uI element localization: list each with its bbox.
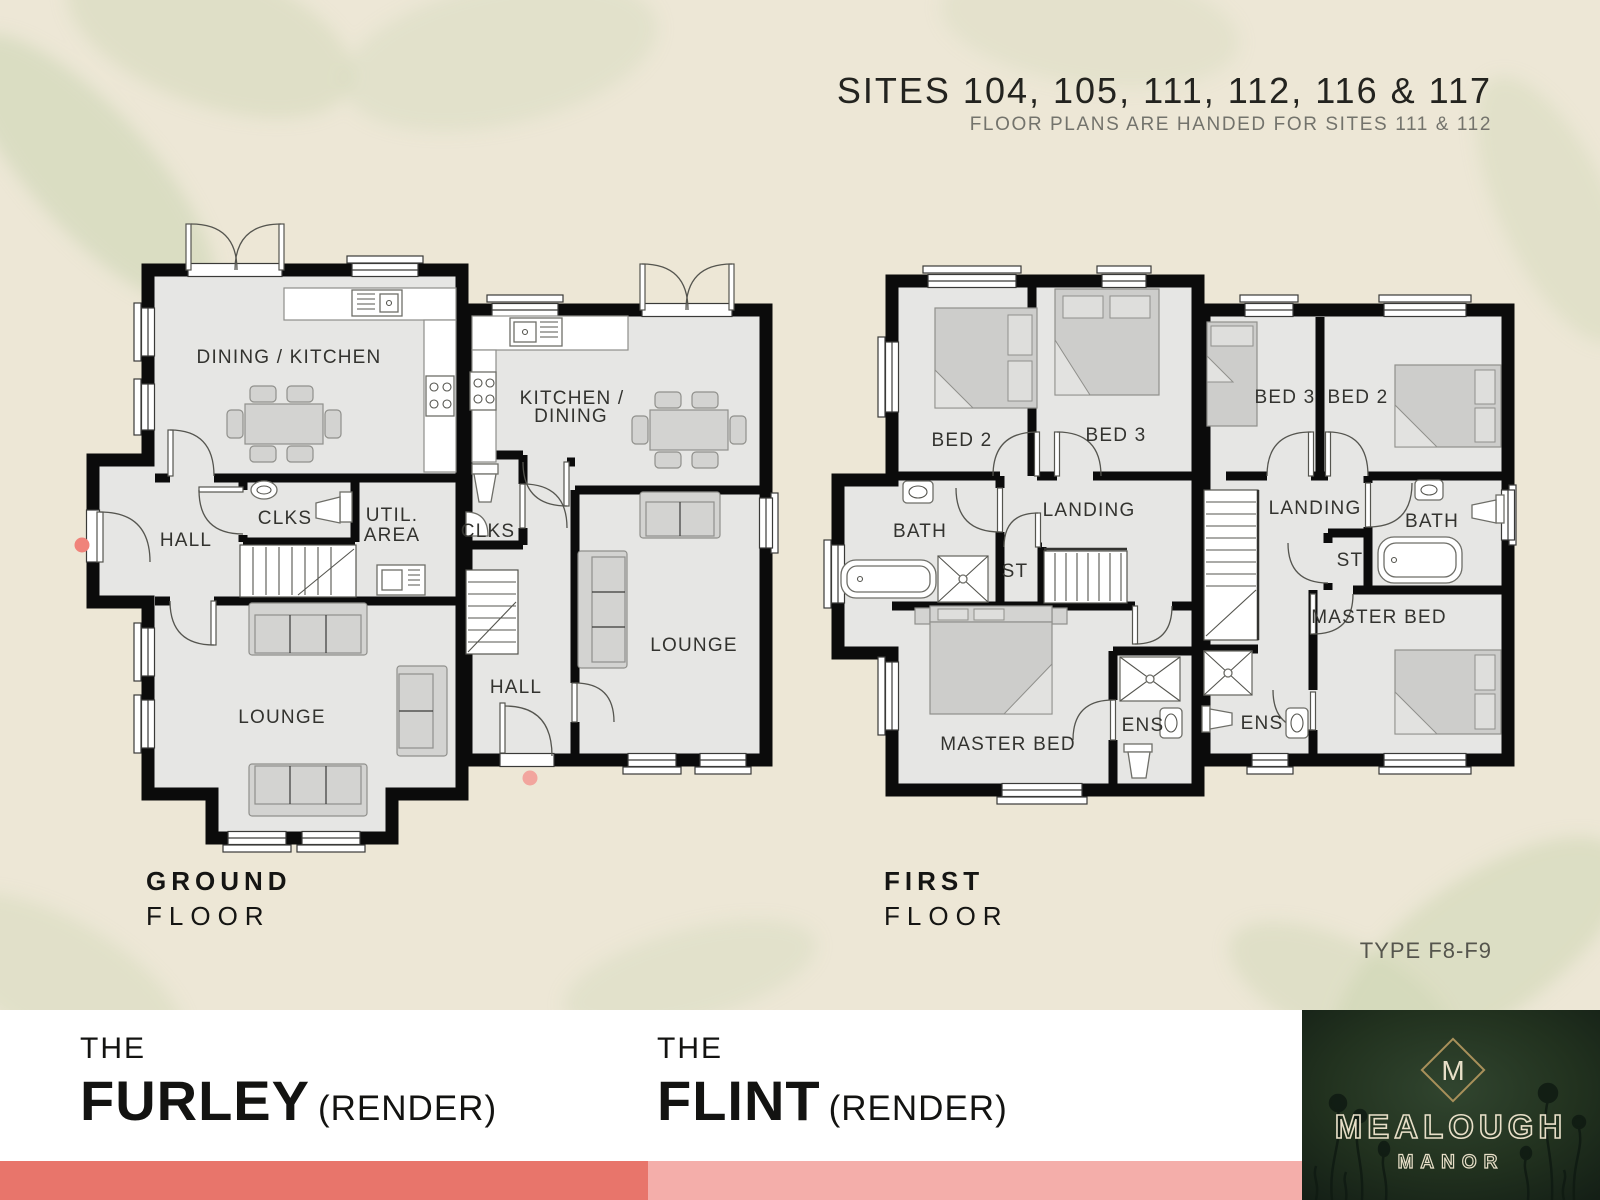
ground-floor-plan: DINING / KITCHEN HALL CLKS UTIL. AREA LO…	[75, 224, 779, 852]
logo-monogram: M	[1441, 1055, 1464, 1086]
first-floor-flint	[1202, 295, 1516, 774]
room-label-bed3-furley: BED 3	[1086, 425, 1147, 446]
sites-title: SITES 104, 105, 111, 112, 116 & 117	[837, 70, 1492, 112]
ground-floor-caption-line1: GROUND	[146, 866, 292, 897]
room-label-dining-kitchen: DINING / KITCHEN	[197, 347, 382, 368]
room-label-util-2: AREA	[364, 525, 421, 546]
room-label-st-furley: ST	[1002, 561, 1029, 582]
room-label-kitchen-dining-2: DINING	[534, 406, 608, 427]
room-label-ens-furley: ENS	[1122, 715, 1165, 736]
site-marker-flint	[523, 771, 538, 786]
room-label-bed2-flint: BED 2	[1328, 387, 1389, 408]
site-marker-furley	[75, 538, 90, 553]
brochure-page: DINING / KITCHEN HALL CLKS UTIL. AREA LO…	[0, 0, 1600, 1200]
room-label-lounge-flint: LOUNGE	[650, 635, 737, 656]
ground-floor-caption-line2: FLOOR	[146, 901, 292, 932]
house-flint-the: THE	[657, 1032, 1008, 1066]
first-floor-caption-line1: FIRST	[884, 866, 1009, 897]
type-label: TYPE F8-F9	[1360, 938, 1492, 964]
stairs-furley-ground	[240, 545, 356, 597]
first-floor-caption: FIRST FLOOR	[884, 866, 1009, 932]
house-flint-name: FLINT	[657, 1068, 821, 1133]
house-furley-suffix: (RENDER)	[318, 1089, 497, 1129]
house-name-flint: THE FLINT (RENDER)	[657, 1032, 1008, 1133]
room-label-st-flint: ST	[1337, 550, 1364, 571]
room-label-clks-furley: CLKS	[258, 508, 312, 529]
pink-strip	[648, 1161, 1302, 1200]
room-label-landing-furley: LANDING	[1043, 500, 1136, 521]
brand-logo-art: M MEALOUGH MANOR	[1302, 1010, 1600, 1200]
room-label-landing-flint: LANDING	[1269, 498, 1362, 519]
room-label-lounge-furley: LOUNGE	[238, 707, 325, 728]
brand-logo: M MEALOUGH MANOR	[1302, 1010, 1600, 1200]
stairs-furley-first	[1044, 549, 1127, 603]
room-label-bath-flint: BATH	[1405, 511, 1459, 532]
room-label-hall-flint: HALL	[490, 677, 542, 698]
sites-subtitle: FLOOR PLANS ARE HANDED FOR SITES 111 & 1…	[970, 114, 1492, 136]
room-label-bed3-flint: BED 3	[1255, 387, 1316, 408]
stairs-flint-first	[1204, 490, 1258, 640]
ground-floor-caption: GROUND FLOOR	[146, 866, 292, 932]
logo-subname: MANOR	[1398, 1152, 1505, 1173]
house-name-furley: THE FURLEY (RENDER)	[80, 1032, 497, 1133]
room-label-clks-flint: CLKS	[461, 521, 515, 542]
stairs-flint-ground	[466, 570, 518, 654]
kitchen-sink-furley	[352, 290, 402, 316]
house-furley-the: THE	[80, 1032, 497, 1066]
room-label-ens-flint: ENS	[1241, 713, 1284, 734]
coral-strip	[0, 1161, 648, 1200]
utility-sink-furley	[377, 565, 425, 595]
logo-name: MEALOUGH	[1335, 1108, 1568, 1145]
kitchen-sink-flint	[510, 318, 562, 346]
room-label-hall-furley: HALL	[160, 530, 212, 551]
first-floor-plan: BED 2 BED 3 BATH LANDING ST MASTER BED E…	[824, 266, 1516, 804]
room-label-util-1: UTIL.	[366, 505, 418, 526]
room-label-master-flint: MASTER BED	[1311, 607, 1447, 628]
room-label-bed2-furley: BED 2	[932, 430, 993, 451]
room-label-bath-furley: BATH	[893, 521, 947, 542]
house-furley-name: FURLEY	[80, 1068, 310, 1133]
first-floor-caption-line2: FLOOR	[884, 901, 1009, 932]
house-flint-suffix: (RENDER)	[829, 1089, 1008, 1129]
room-label-master-furley: MASTER BED	[940, 734, 1076, 755]
hob-furley	[426, 376, 454, 416]
hob-flint	[470, 372, 496, 410]
